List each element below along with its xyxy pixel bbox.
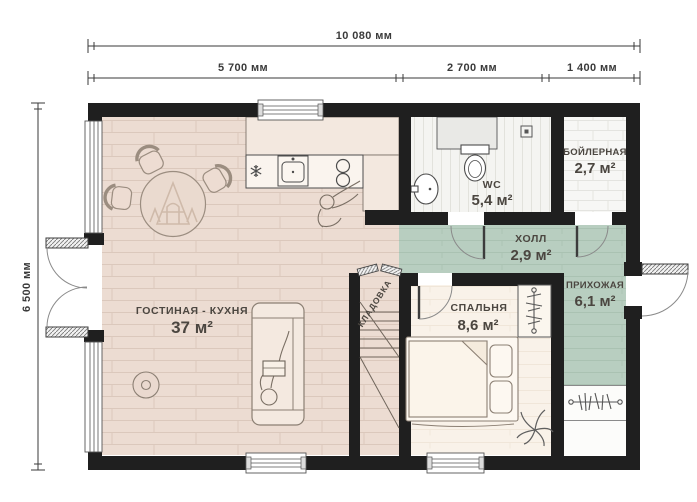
wall-left-top bbox=[88, 103, 102, 121]
kitchen-sink-icon bbox=[278, 156, 308, 186]
hall-area: 2,9 м² bbox=[510, 247, 551, 264]
wall-left-bottom bbox=[88, 452, 102, 470]
bed bbox=[406, 337, 518, 427]
wall-bottom-2 bbox=[306, 456, 427, 470]
kitchen-counter-return bbox=[363, 155, 399, 211]
wc-area: 5,4 м² bbox=[471, 192, 512, 209]
wall-bedroom-top-left bbox=[411, 273, 418, 286]
dim-segment-2: 2 700 мм bbox=[447, 62, 497, 74]
entry-hall-area: 6,1 м² bbox=[574, 293, 615, 310]
entry-hall-label: ПРИХОЖАЯ bbox=[566, 280, 624, 291]
wall-bottom-3 bbox=[484, 456, 640, 470]
wall-bottom-1 bbox=[88, 456, 246, 470]
boiler-room-area: 2,7 м² bbox=[574, 160, 615, 177]
window-living-left-lower bbox=[85, 342, 102, 452]
wall-wc-bottom-right bbox=[484, 212, 575, 225]
window-living-bottom bbox=[246, 453, 306, 473]
living-room-area: 37 м² bbox=[171, 318, 213, 337]
french-door-left bbox=[46, 238, 88, 337]
entrance-jamb-top bbox=[624, 262, 642, 276]
wall-wc-bottom-left bbox=[411, 212, 448, 225]
bedroom-wardrobe bbox=[518, 285, 551, 337]
entrance-door bbox=[642, 264, 688, 316]
living-room-label: ГОСТИНАЯ - КУХНЯ bbox=[136, 305, 248, 317]
wall-boiler-bottom-right bbox=[612, 212, 626, 225]
wall-wc-boiler bbox=[551, 117, 564, 212]
wc-label: WC bbox=[483, 179, 502, 191]
hall-label: ХОЛЛ bbox=[515, 233, 547, 245]
shower-tray bbox=[437, 117, 497, 149]
wall-living-wc bbox=[399, 117, 411, 212]
dim-segment-3: 1 400 мм bbox=[567, 62, 617, 74]
window-living-left-upper bbox=[85, 121, 102, 233]
bedroom-label: СПАЛЬНЯ bbox=[450, 302, 507, 314]
wall-top-right bbox=[323, 103, 640, 117]
window-bedroom-bottom bbox=[427, 453, 484, 473]
sofa bbox=[252, 303, 304, 425]
shower-drain-icon bbox=[521, 126, 532, 137]
floor-plan-canvas: ГОСТИНАЯ - КУХНЯ 37 м² WC 5,4 м² БОЙЛЕРН… bbox=[0, 0, 697, 502]
wall-top-left bbox=[88, 103, 258, 117]
round-rug bbox=[133, 372, 159, 398]
window-kitchen-top bbox=[258, 100, 323, 120]
wall-kitchen-stub bbox=[365, 210, 411, 225]
boiler-room-label: БОЙЛЕРНАЯ bbox=[563, 146, 627, 158]
kitchen-counter-top bbox=[246, 117, 399, 155]
wall-right-top bbox=[626, 103, 640, 264]
wall-right-bottom bbox=[626, 317, 640, 470]
dining-table bbox=[141, 172, 206, 237]
wall-bedroom-top-right bbox=[452, 273, 564, 286]
wall-bedroom-entry bbox=[551, 273, 564, 456]
dim-height: 6 500 мм bbox=[21, 262, 33, 312]
floor-plan-svg: ГОСТИНАЯ - КУХНЯ 37 м² WC 5,4 м² БОЙЛЕРН… bbox=[0, 0, 697, 502]
wall-stairs-left bbox=[349, 273, 360, 456]
bedroom-area: 8,6 м² bbox=[457, 317, 498, 334]
dim-segment-1: 5 700 мм bbox=[218, 62, 268, 74]
dim-total-width: 10 080 мм bbox=[336, 30, 393, 42]
